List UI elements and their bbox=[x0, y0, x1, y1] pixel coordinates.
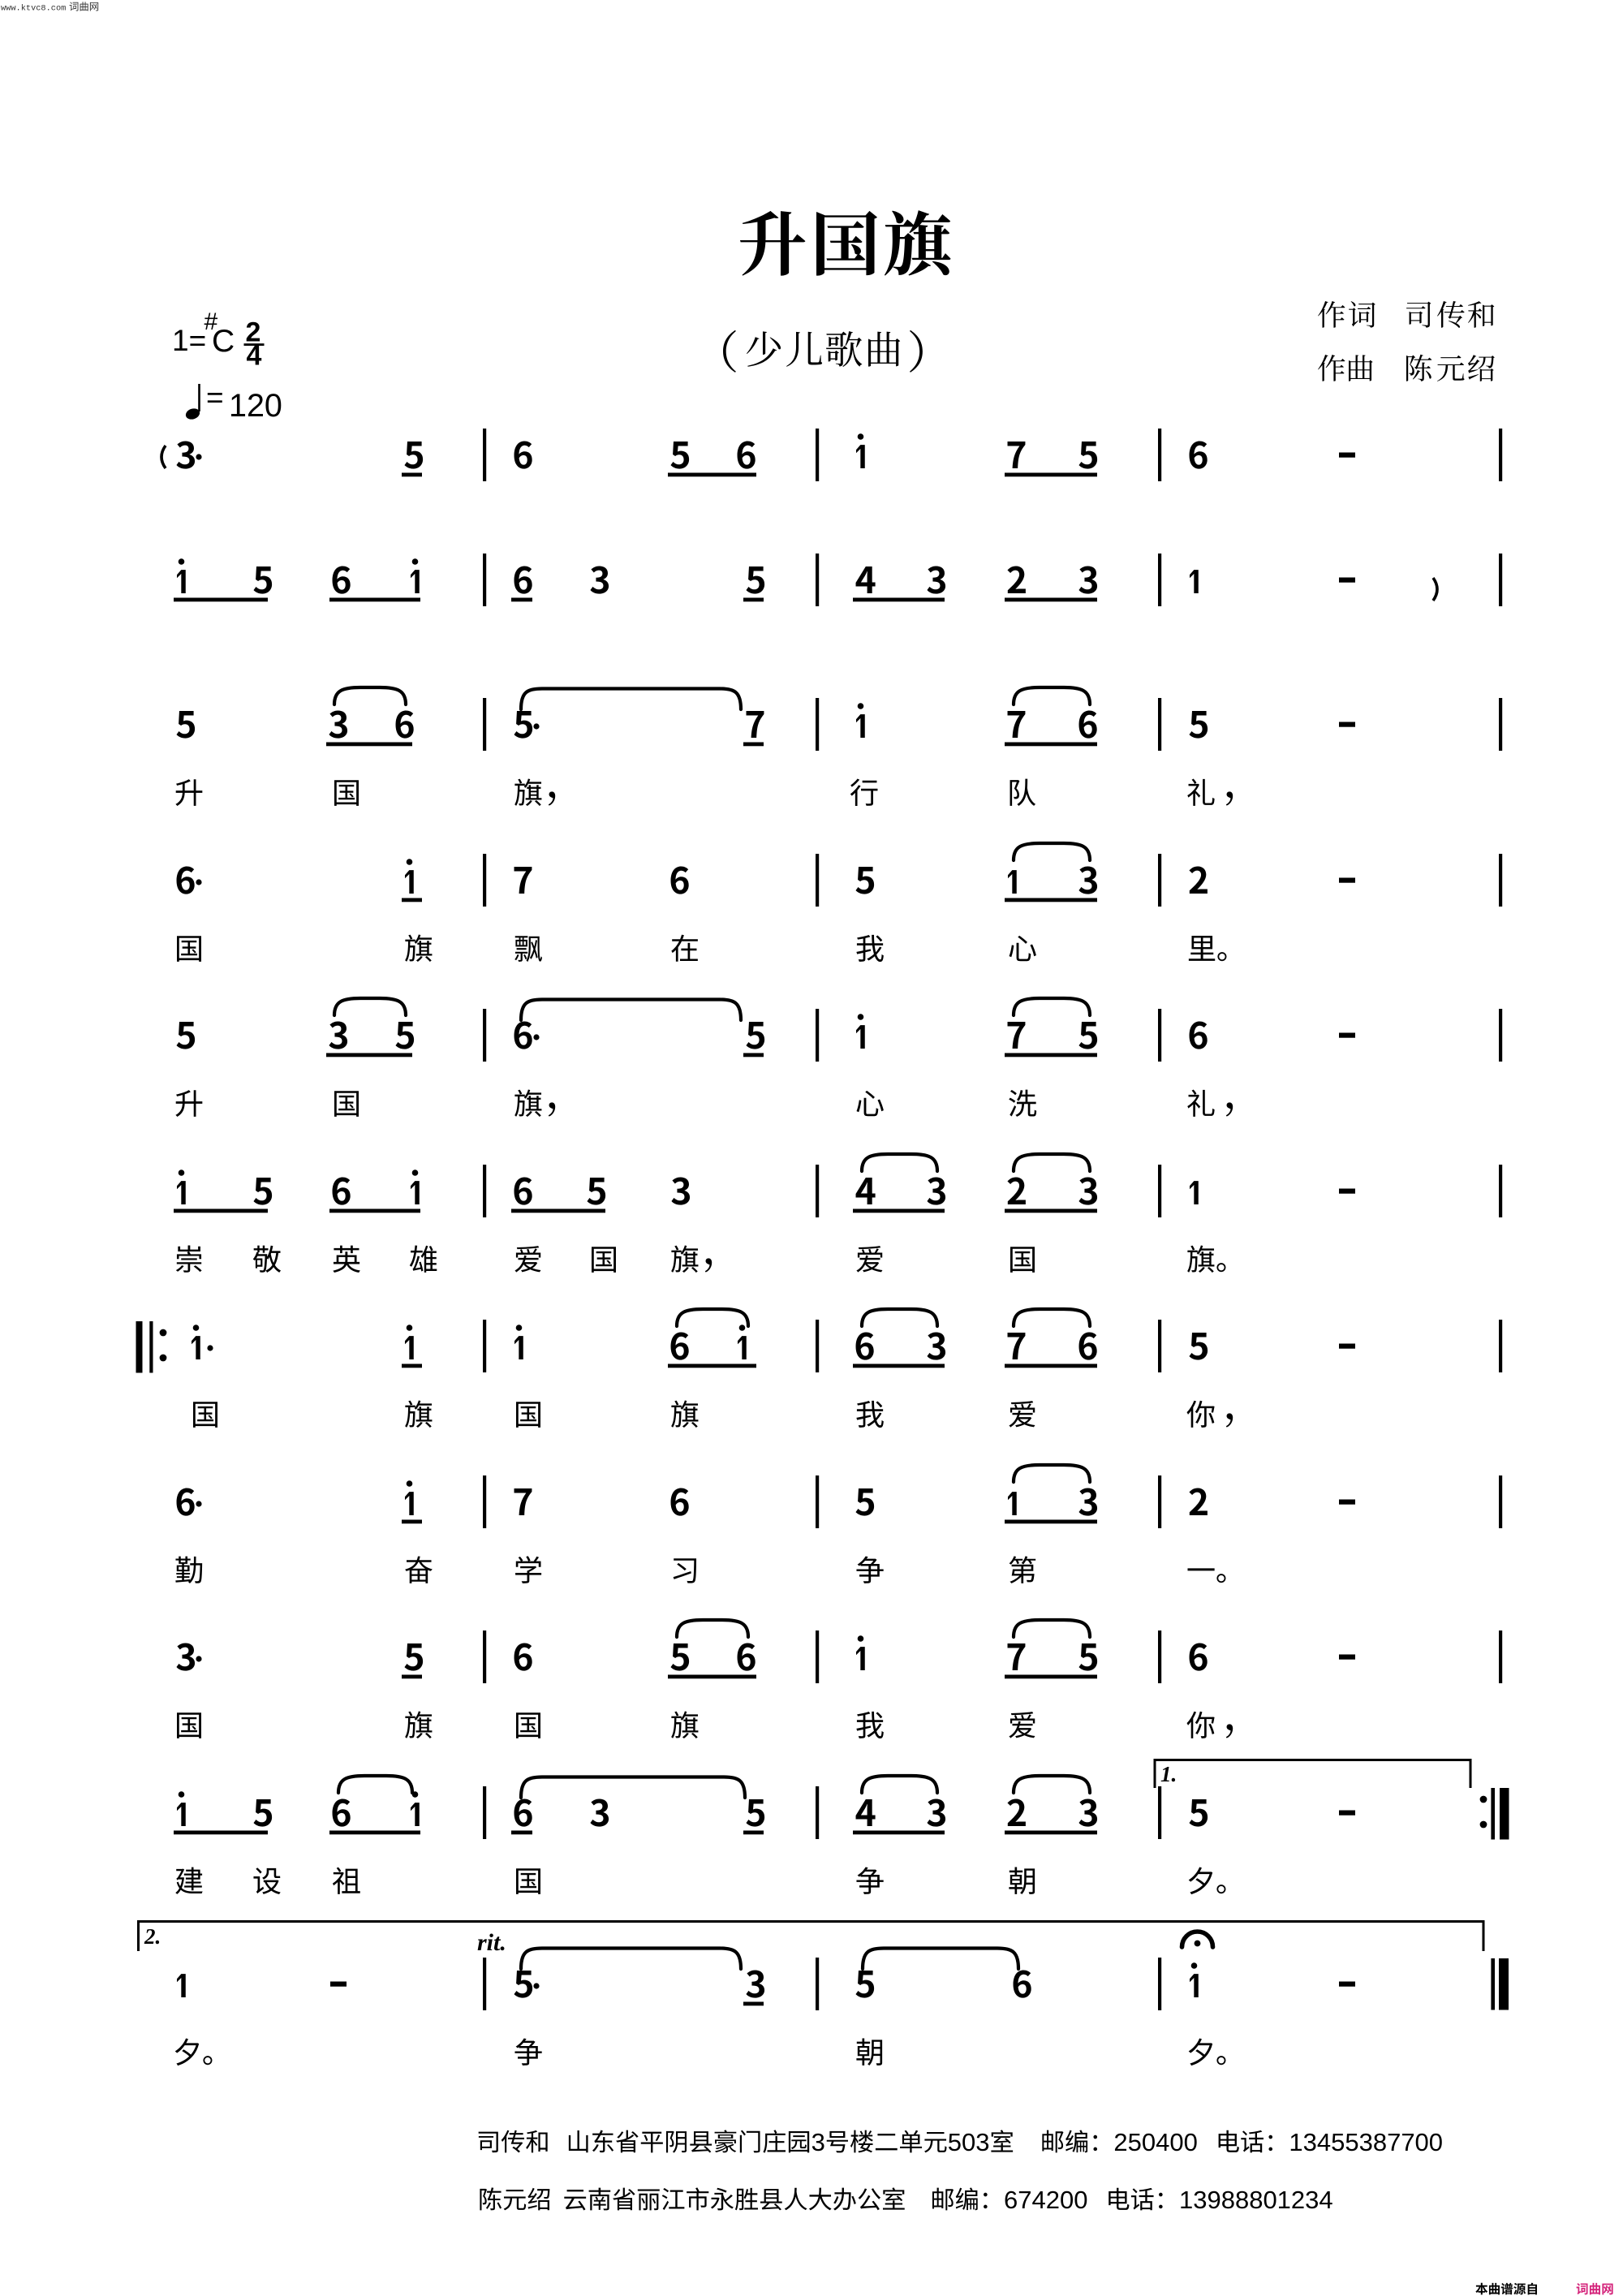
svg-text:674200: 674200 bbox=[1004, 2186, 1087, 2214]
svg-text:C: C bbox=[212, 324, 235, 359]
svg-text:3: 3 bbox=[811, 2128, 825, 2156]
svg-text:120: 120 bbox=[229, 388, 282, 424]
svg-text:250400: 250400 bbox=[1113, 2128, 1197, 2156]
svg-text:503: 503 bbox=[948, 2128, 990, 2156]
svg-text:13455387700: 13455387700 bbox=[1289, 2128, 1443, 2156]
svg-text:13988801234: 13988801234 bbox=[1179, 2186, 1333, 2214]
svg-text:4: 4 bbox=[247, 341, 262, 372]
svg-text:=: = bbox=[206, 381, 224, 414]
svg-text:1.: 1. bbox=[1160, 1762, 1177, 1786]
svg-text:www.ktvc8.com: www.ktvc8.com bbox=[1, 4, 66, 14]
svg-text:1=: 1= bbox=[172, 324, 206, 357]
svg-text:2.: 2. bbox=[144, 1924, 161, 1949]
svg-text:rit.: rit. bbox=[477, 1929, 506, 1956]
